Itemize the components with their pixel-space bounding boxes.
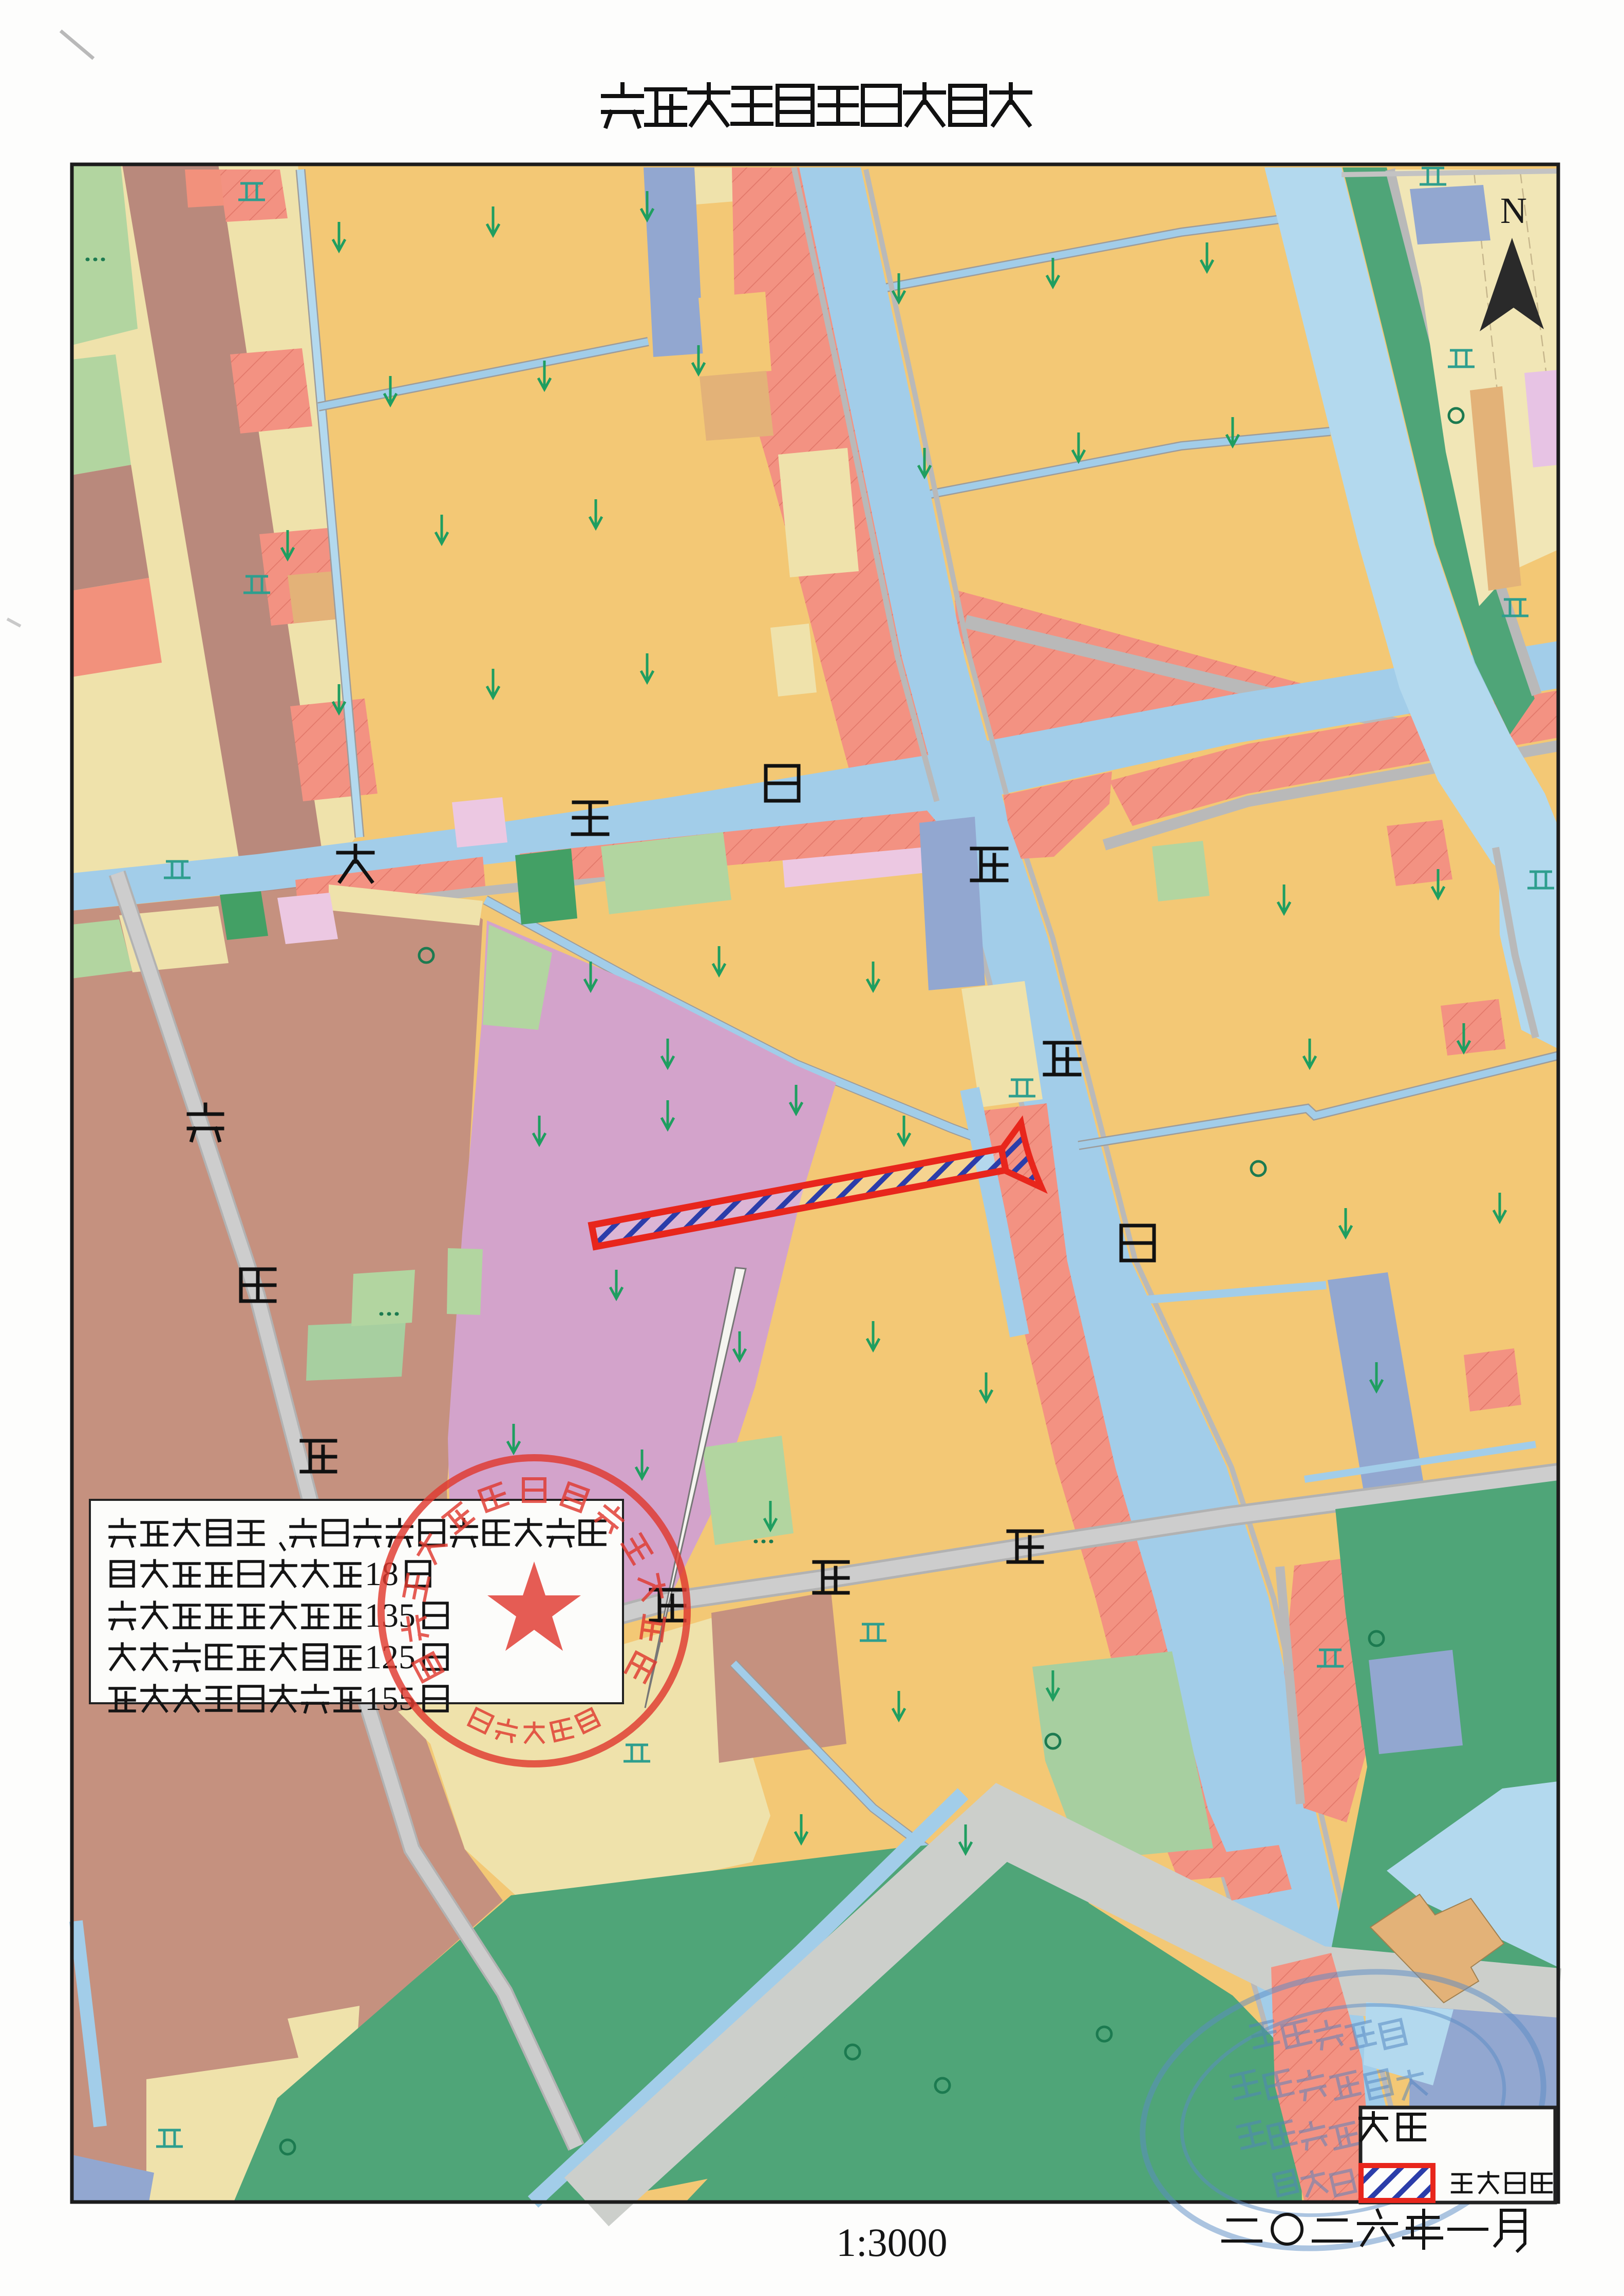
svg-text:N: N	[1500, 190, 1527, 231]
svg-text:1:3000: 1:3000	[836, 2220, 948, 2265]
